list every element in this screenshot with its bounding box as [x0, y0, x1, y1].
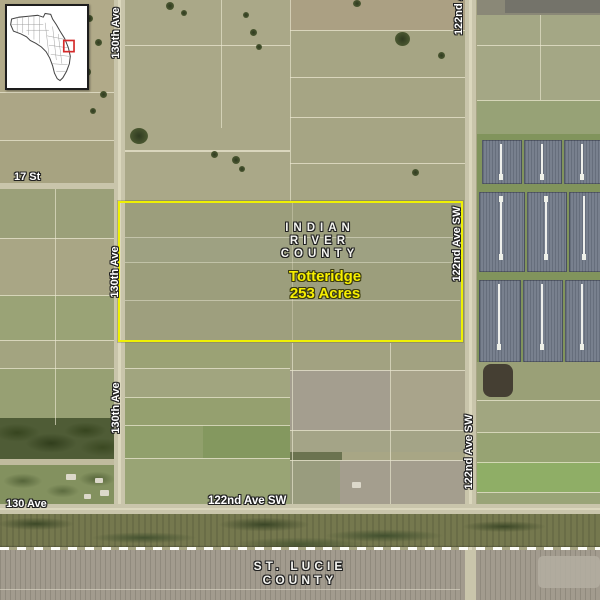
field-parcel	[290, 343, 465, 370]
canal-vegetation-band	[0, 514, 600, 547]
tree-cover	[0, 418, 114, 460]
florida-outline-map	[7, 6, 87, 88]
florida-inset-map	[5, 4, 89, 90]
county-label-line: COUNTY	[230, 248, 410, 261]
tree	[250, 29, 257, 36]
road-label-17-st: 17 St	[14, 171, 40, 183]
tree	[243, 12, 249, 18]
field-parcel	[290, 430, 465, 452]
property-acreage: 253 Acres	[235, 285, 415, 302]
tree	[211, 151, 218, 158]
road-17-st	[0, 183, 114, 189]
tree	[90, 108, 96, 114]
building	[352, 482, 361, 488]
field-parcel	[477, 400, 600, 432]
building	[95, 478, 103, 483]
light-soil-patch	[538, 556, 600, 588]
hedgerow	[290, 452, 342, 460]
field-parcel	[477, 432, 600, 462]
field-parcel	[0, 238, 114, 295]
road-label-130th-ave-top: 130th Ave	[110, 7, 122, 58]
tree	[353, 0, 361, 7]
tree	[130, 128, 148, 144]
field-parcel	[203, 425, 290, 458]
building	[66, 474, 76, 480]
pond	[483, 364, 513, 397]
field-parcel	[477, 462, 600, 492]
tree	[181, 10, 187, 16]
field-parcel	[125, 343, 290, 368]
road-label-130-ave: 130 Ave	[6, 498, 47, 510]
tree	[412, 169, 419, 176]
field-parcel	[0, 189, 114, 238]
field-parcel	[290, 0, 465, 30]
solar-array	[479, 192, 525, 272]
county-label-line: ST. LUCIE	[210, 559, 390, 573]
field-parcel	[390, 370, 465, 430]
field-parcel	[0, 340, 114, 368]
tree	[166, 2, 174, 10]
tree	[438, 52, 445, 59]
dark-field-patch	[505, 0, 600, 13]
field-parcel	[477, 100, 600, 138]
county-label-st-lucie: ST. LUCIE COUNTY	[210, 559, 390, 587]
road-label-122nd-ave-sw-mid: 122nd Ave SW	[451, 207, 463, 282]
aerial-map: 130th Ave 130th Ave 130th Ave 122nd Ave …	[0, 0, 600, 600]
tree	[239, 166, 245, 172]
field-parcel	[125, 0, 290, 203]
road-label-122nd-ave-top: 122nd Ave	[453, 0, 465, 35]
county-label-indian-river: INDIAN RIVER COUNTY	[230, 222, 410, 261]
tree	[232, 156, 240, 164]
road-label-130th-ave-low: 130th Ave	[110, 382, 122, 433]
field-parcel	[125, 425, 203, 458]
county-label-line: COUNTY	[210, 573, 390, 587]
tree	[95, 39, 102, 46]
fallow-field	[290, 370, 390, 430]
building	[100, 490, 109, 496]
property-name: Totteridge	[235, 268, 415, 285]
field-parcel	[0, 92, 114, 140]
road-122nd-ave-sw	[465, 550, 476, 600]
field-parcel	[125, 368, 290, 397]
road-label-130th-ave-mid: 130th Ave	[109, 246, 121, 297]
field-parcel	[0, 368, 114, 418]
property-label: Totteridge 253 Acres	[235, 268, 415, 302]
field-parcel	[125, 397, 290, 425]
tree	[256, 44, 262, 50]
county-label-line: RIVER	[230, 235, 410, 248]
county-label-line: INDIAN	[230, 222, 410, 235]
solar-array	[527, 192, 567, 272]
road-centerline	[0, 508, 600, 510]
road-label-122nd-ave-sw-bottom: 122nd Ave SW	[208, 495, 286, 507]
field-parcel	[0, 295, 114, 340]
orchard-rows	[477, 15, 600, 100]
road-label-122nd-ave-sw-low: 122nd Ave SW	[463, 415, 475, 490]
tree	[395, 32, 410, 46]
tree	[100, 91, 107, 98]
building	[84, 494, 91, 499]
field-parcel	[290, 460, 340, 505]
